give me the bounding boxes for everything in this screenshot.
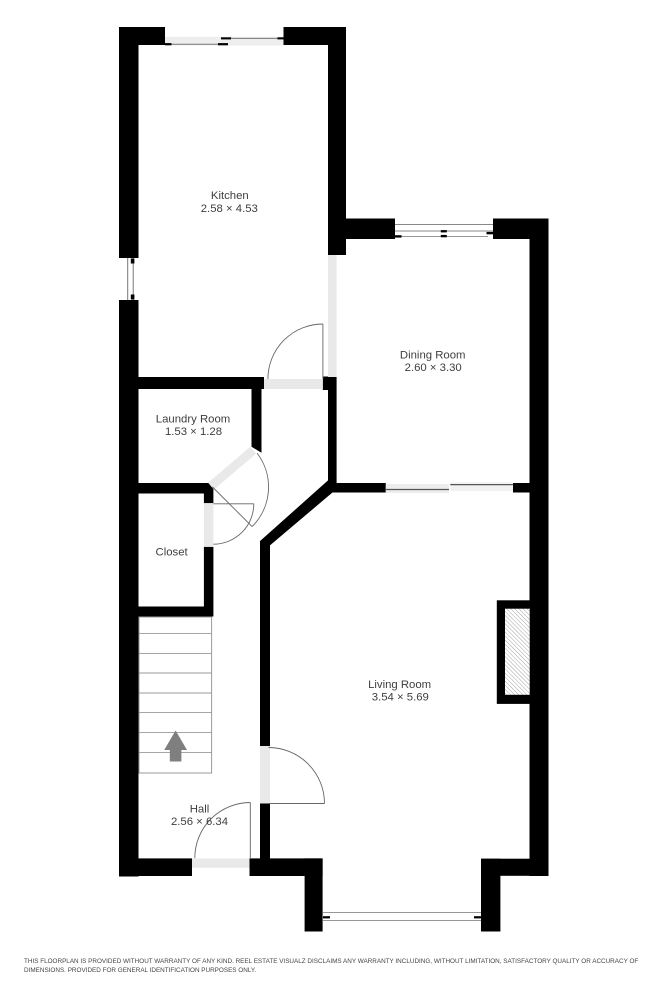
svg-text:Dining Room: Dining Room (400, 350, 466, 362)
svg-text:Living Room: Living Room (368, 679, 431, 691)
svg-text:DIMENSIONS. PROVIDED FOR GENER: DIMENSIONS. PROVIDED FOR GENERAL IDENTIF… (24, 967, 256, 974)
svg-text:THIS FLOORPLAN IS PROVIDED WIT: THIS FLOORPLAN IS PROVIDED WITHOUT WARRA… (24, 958, 638, 965)
svg-text:2.58 × 4.53: 2.58 × 4.53 (201, 203, 258, 215)
svg-text:3.54 × 5.69: 3.54 × 5.69 (372, 691, 429, 703)
svg-text:Closet: Closet (156, 547, 189, 559)
svg-text:1.53 × 1.28: 1.53 × 1.28 (165, 426, 222, 438)
svg-text:Laundry Room: Laundry Room (156, 413, 230, 425)
svg-text:Kitchen: Kitchen (211, 190, 249, 202)
svg-text:2.56 × 6.34: 2.56 × 6.34 (171, 816, 228, 828)
svg-text:2.60 × 3.30: 2.60 × 3.30 (405, 362, 462, 374)
svg-text:Hall: Hall (190, 804, 210, 816)
